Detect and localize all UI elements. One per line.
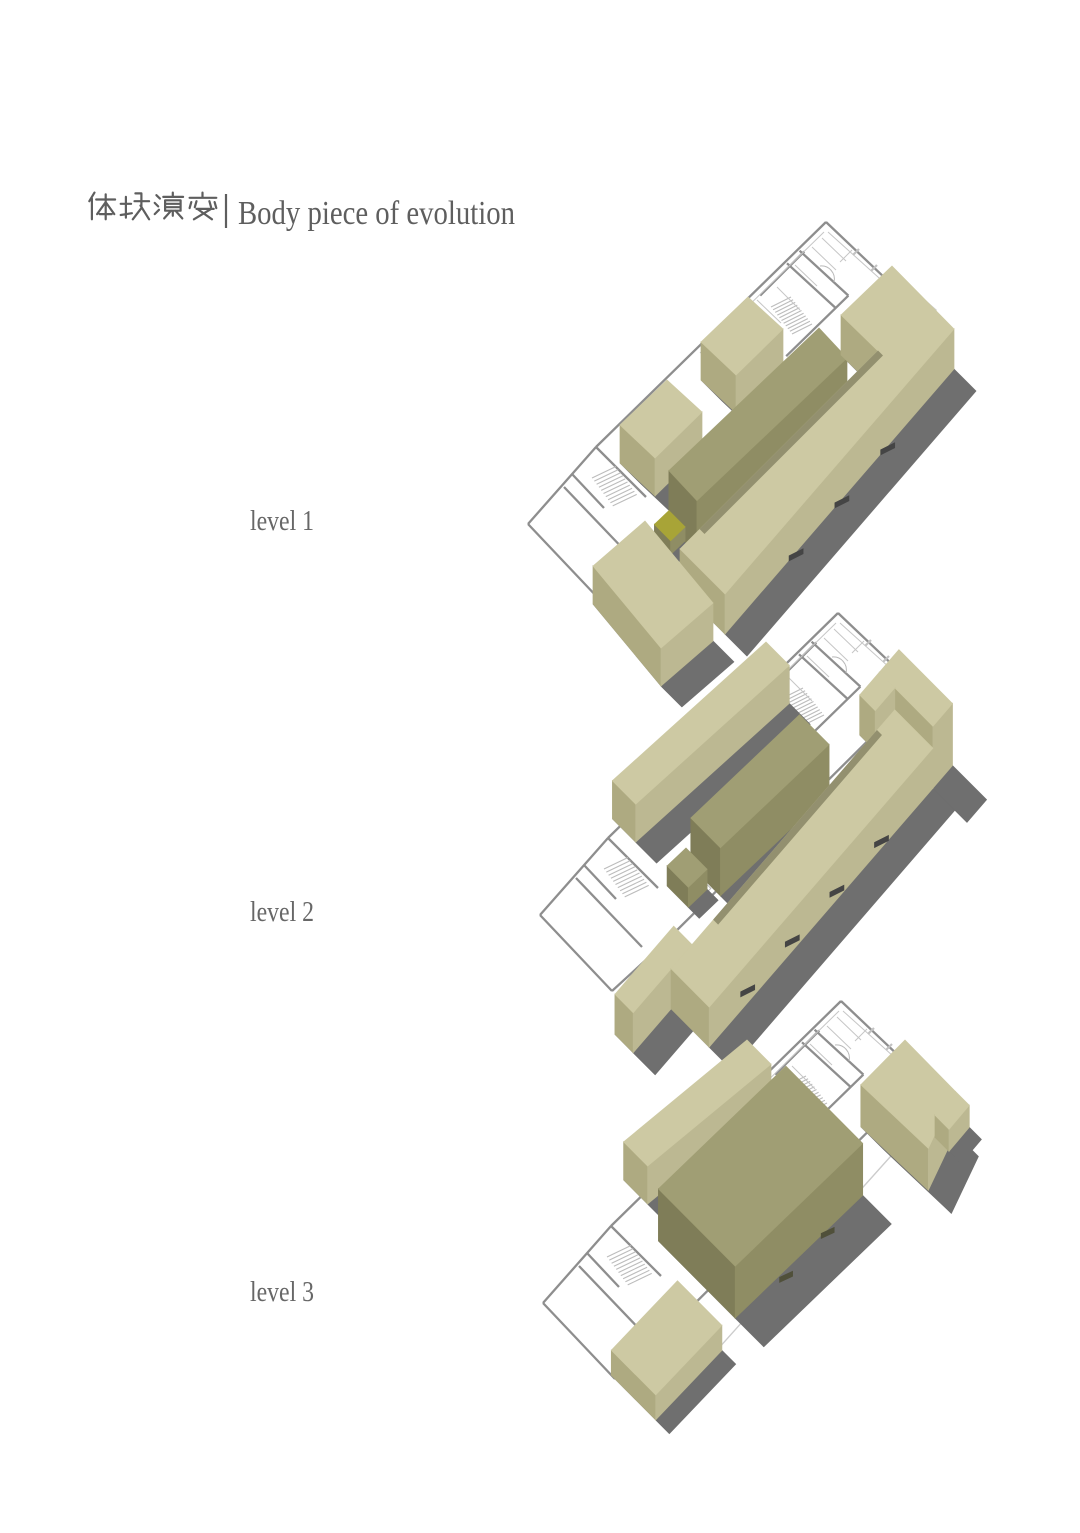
- svg-text:level 2: level 2: [250, 896, 314, 928]
- svg-text:Body piece of evolution: Body piece of evolution: [238, 195, 515, 232]
- svg-text:level 3: level 3: [250, 1276, 314, 1308]
- svg-text:level 1: level 1: [250, 505, 314, 537]
